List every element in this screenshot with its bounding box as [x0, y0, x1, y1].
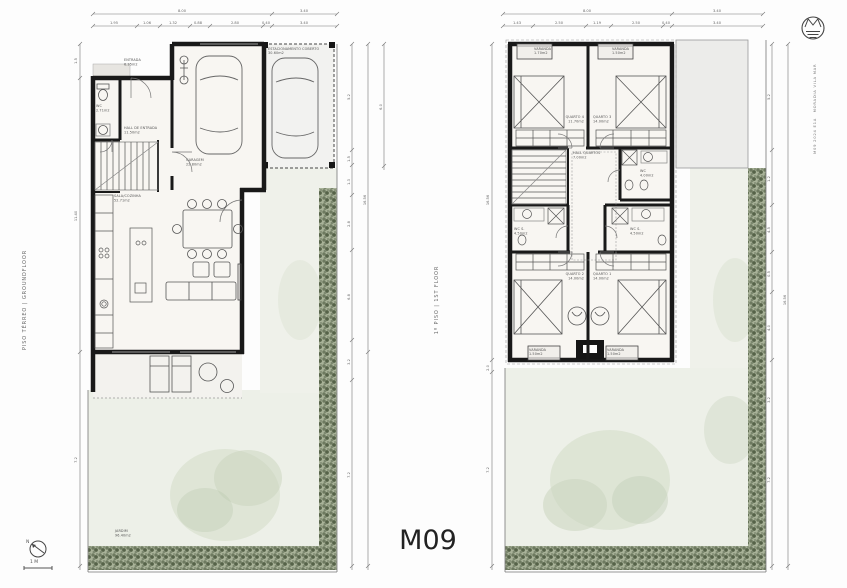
- svg-text:1.50m2: 1.50m2: [529, 352, 543, 356]
- svg-text:1.95: 1.95: [110, 21, 118, 25]
- room-label: SALA/COZINHA: [114, 194, 142, 198]
- svg-text:0.5: 0.5: [767, 271, 771, 277]
- svg-text:4.5: 4.5: [767, 227, 771, 233]
- svg-text:4.50m2: 4.50m2: [514, 232, 528, 236]
- svg-text:7.2: 7.2: [767, 477, 771, 483]
- svg-text:3.40: 3.40: [300, 9, 309, 13]
- svg-text:WC S.: WC S.: [514, 227, 525, 231]
- hedge-bottom: [88, 546, 337, 570]
- svg-text:3.40: 3.40: [713, 9, 722, 13]
- svg-text:1.19: 1.19: [593, 21, 602, 25]
- svg-text:5.2: 5.2: [347, 94, 351, 100]
- room-label: WC: [96, 104, 102, 108]
- svg-text:3.40: 3.40: [300, 21, 309, 25]
- svg-text:1.50m2: 1.50m2: [612, 51, 626, 55]
- room-area: 6.35m2: [124, 63, 138, 67]
- svg-text:1.50m2: 1.50m2: [607, 352, 621, 356]
- room-area: 52.71m2: [114, 199, 130, 203]
- first-floor-title: 1º PISO | 1ST FLOOR: [434, 266, 440, 335]
- svg-text:2.50: 2.50: [555, 21, 564, 25]
- svg-text:7.2: 7.2: [486, 467, 490, 473]
- svg-text:5.2: 5.2: [767, 94, 771, 100]
- ff-dim-line-left: [490, 42, 494, 570]
- svg-text:14.00m2: 14.00m2: [593, 120, 609, 124]
- svg-text:14.00m2: 14.00m2: [593, 277, 609, 281]
- room-area: 11.50m2: [124, 131, 140, 135]
- scale-label: 1 M: [30, 559, 38, 565]
- svg-text:QUARTO 4: QUARTO 4: [566, 115, 584, 119]
- svg-text:QUARTO 3: QUARTO 3: [593, 115, 611, 119]
- svg-text:0.40: 0.40: [662, 21, 671, 25]
- svg-text:16.56: 16.56: [783, 294, 787, 305]
- svg-text:7.2: 7.2: [347, 472, 351, 478]
- svg-text:1.5: 1.5: [74, 58, 78, 64]
- svg-text:2.80: 2.80: [231, 21, 240, 25]
- svg-text:14.00m2: 14.00m2: [568, 277, 584, 281]
- svg-text:HALL QUARTOS: HALL QUARTOS: [573, 151, 600, 155]
- svg-text:0.40: 0.40: [262, 21, 271, 25]
- svg-text:1.70m2: 1.70m2: [534, 51, 548, 55]
- room-area: 2.71m2: [96, 109, 110, 113]
- carport-roof: [676, 40, 748, 168]
- gf-dim-labels-top: 8.00 3.40 1.95 1.06 1.32 0.88 2.80 0.40 …: [110, 9, 309, 25]
- hedge-bottom: [505, 546, 766, 570]
- svg-text:QUARTO 2: QUARTO 2: [566, 272, 584, 276]
- svg-text:4.00m2: 4.00m2: [640, 174, 654, 178]
- room-area: 96.40m2: [115, 534, 131, 538]
- svg-text:0.88: 0.88: [194, 21, 203, 25]
- ground-floor-plan: ENTRADA 6.35m2 WC 2.71m2 HALL DE ENTRADA…: [20, 9, 386, 572]
- ground-floor-title: PISO TÉRREO | GROUNDFLOOR: [20, 250, 28, 350]
- svg-text:2.50: 2.50: [632, 21, 641, 25]
- svg-text:4.50m2: 4.50m2: [630, 232, 644, 236]
- ff-dim-lines-top: [501, 12, 765, 28]
- svg-text:1.5: 1.5: [347, 156, 351, 162]
- svg-text:1.3: 1.3: [347, 179, 351, 185]
- svg-text:4.0: 4.0: [767, 324, 771, 330]
- ff-dim-labels-right: 5.2 1.2 4.5 0.5 4.0 3.2 7.2 16.56: [767, 94, 787, 483]
- sheet-code: M09: [399, 525, 457, 556]
- room-label: JARDIM: [114, 529, 128, 533]
- svg-text:7.2: 7.2: [74, 457, 78, 463]
- architectural-sheet: ENTRADA 6.35m2 WC 2.71m2 HALL DE ENTRADA…: [0, 0, 847, 588]
- svg-text:1.32: 1.32: [169, 21, 177, 25]
- svg-text:7.00m2: 7.00m2: [573, 156, 587, 160]
- gf-dim-line-left: [78, 42, 82, 570]
- svg-text:QUARTO 1: QUARTO 1: [593, 272, 611, 276]
- svg-text:11.40: 11.40: [74, 210, 78, 221]
- project-name: MORADIA VILA MAR: [812, 64, 817, 113]
- gf-dim-lines-top: [91, 12, 339, 28]
- svg-text:2.0: 2.0: [486, 364, 490, 370]
- sheet-reference: M09 2024 E1A: [812, 118, 817, 154]
- svg-text:1.43: 1.43: [513, 21, 521, 25]
- hedge-right: [748, 168, 766, 570]
- room-area: 30.60m2: [268, 51, 284, 55]
- svg-text:3.40: 3.40: [713, 21, 722, 25]
- svg-text:16.56: 16.56: [486, 194, 490, 205]
- svg-text:WC: WC: [640, 169, 646, 173]
- gf-dim-labels-right: 5.2 1.5 1.3 2.8 6.8 3.2 7.2 16.56 6.0: [347, 94, 383, 478]
- room-label: ENTRADA: [124, 58, 141, 62]
- svg-text:3.2: 3.2: [347, 359, 351, 365]
- room-label: GARAGEM: [186, 158, 204, 162]
- first-floor-plan: VARANDA 1.70m2 VARANDA 1.50m2 QUARTO 4 1…: [434, 9, 790, 572]
- terrace: [93, 352, 242, 398]
- svg-text:2.8: 2.8: [347, 220, 351, 226]
- svg-text:11.70m2: 11.70m2: [568, 120, 584, 124]
- svg-text:8.00: 8.00: [178, 9, 187, 13]
- room-label: HALL DE ENTRADA: [124, 126, 158, 130]
- svg-text:1.06: 1.06: [143, 21, 152, 25]
- ff-dim-labels-top: 8.00 3.40 1.43 2.50 1.19 2.50 0.40 3.40: [513, 9, 722, 25]
- wave-monogram-logo-icon: [802, 17, 824, 39]
- gf-dim-lines-right: [350, 42, 386, 570]
- north-label: N: [26, 539, 29, 545]
- floor-plan-drawing: ENTRADA 6.35m2 WC 2.71m2 HALL DE ENTRADA…: [0, 0, 847, 588]
- svg-text:6.8: 6.8: [347, 293, 351, 299]
- hedge-right: [319, 188, 337, 570]
- svg-text:8.00: 8.00: [583, 9, 592, 13]
- svg-text:1.2: 1.2: [767, 176, 771, 182]
- svg-text:WC S.: WC S.: [630, 227, 641, 231]
- ff-dim-lines-right: [770, 42, 790, 570]
- svg-text:3.2: 3.2: [767, 397, 771, 403]
- scale-bar: 1 M: [24, 559, 52, 570]
- svg-text:16.56: 16.56: [363, 194, 367, 205]
- north-arrow-icon: [30, 541, 46, 557]
- room-area: 22.80m2: [186, 163, 202, 167]
- svg-text:6.0: 6.0: [379, 103, 383, 109]
